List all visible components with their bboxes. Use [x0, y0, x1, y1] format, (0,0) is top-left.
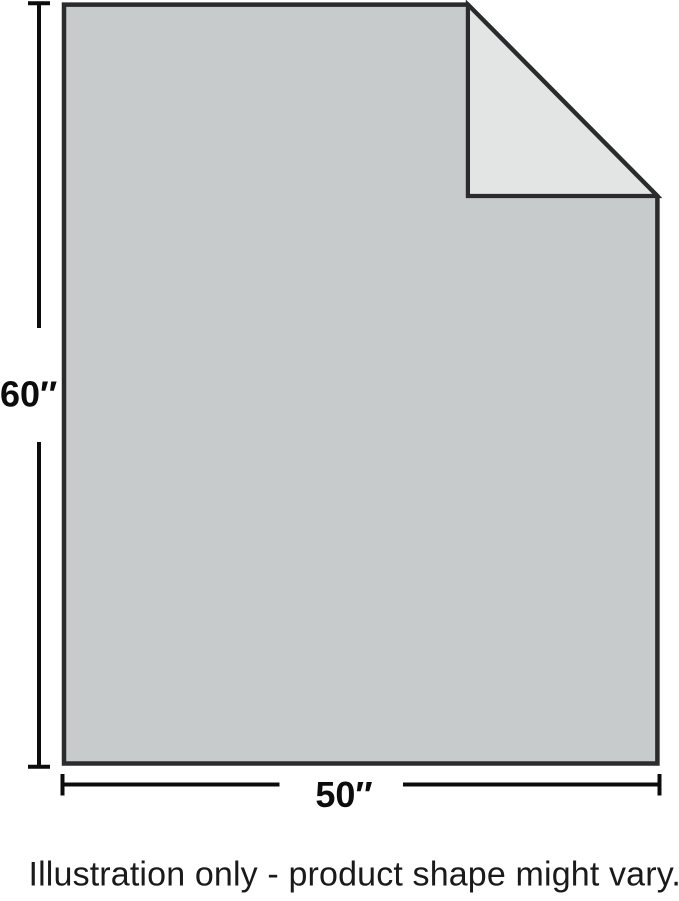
svg-text:60″: 60″ [0, 374, 57, 415]
svg-text:50″: 50″ [315, 774, 372, 815]
svg-text:Illustration only - product sh: Illustration only - product shape might … [29, 856, 679, 894]
